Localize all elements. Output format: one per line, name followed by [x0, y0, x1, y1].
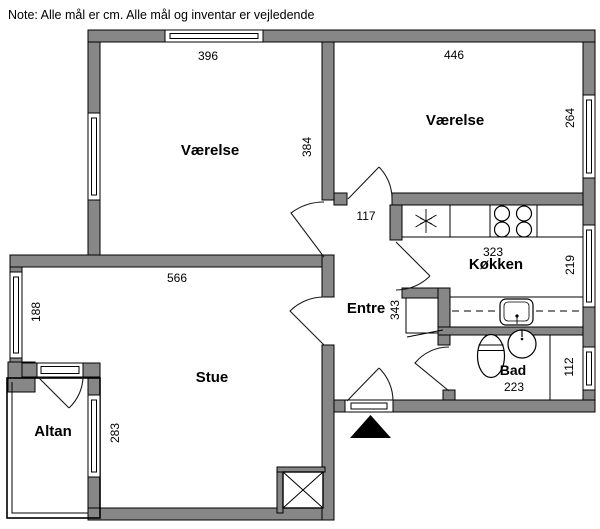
window-pane [587, 230, 592, 302]
wall-segment [88, 30, 595, 42]
dim-vaerelse1-width: 396 [198, 49, 218, 63]
floor-plan: Note: Alle mål er cm. Alle mål og invent… [0, 0, 600, 529]
window-pane [170, 34, 258, 39]
balcony-outline [7, 378, 100, 518]
dim-stue-width: 566 [167, 271, 187, 285]
window-pane [587, 352, 592, 385]
window-pane [92, 400, 97, 472]
room-label-altan: Altan [34, 423, 72, 440]
kitchen-sink-icon [500, 299, 533, 325]
wall-segment [322, 42, 334, 200]
balcony-door-sill-pane [41, 367, 79, 374]
kitchen-counter-top [402, 205, 583, 237]
door-arc-entrance [347, 368, 393, 401]
shaft-x-box [283, 472, 323, 508]
window-pane [14, 277, 19, 353]
wall-segment [334, 193, 347, 205]
door-arc-altan [38, 377, 83, 408]
room-label-entre: Entre [347, 300, 385, 317]
entrance-door-sill-pane [351, 403, 387, 409]
note-text: Note: Alle mål er cm. Alle mål og invent… [8, 8, 314, 22]
room-label-stue: Stue [196, 369, 229, 386]
dim-vaerelse2-depth: 264 [563, 108, 577, 128]
wall-segment [277, 467, 325, 472]
room-label-vaerelse1: Værelse [181, 142, 239, 159]
dim-bad-depth: 112 [562, 357, 576, 376]
door-arc-bad [415, 347, 449, 391]
door-arc-vaerelse1 [291, 202, 324, 257]
window-pane [587, 100, 592, 173]
dim-vaerelse2-width: 446 [444, 48, 464, 62]
door-arc-koekken [396, 242, 430, 290]
balcony-inner-line [12, 382, 88, 513]
wall-segment [443, 390, 455, 400]
wall-segment [277, 467, 283, 513]
wall-segment [438, 327, 583, 335]
entre-closet [406, 298, 443, 337]
door-arc-vaerelse2 [348, 167, 392, 199]
closet-box [406, 298, 438, 333]
wall-segment [88, 508, 334, 520]
wall-segment [390, 205, 402, 240]
labels: Værelse 396 384 Værelse 446 264 Køkken 3… [29, 48, 577, 443]
dim-entre-hall-width: 117 [356, 209, 375, 223]
dim-entre-depth: 343 [388, 300, 402, 320]
room-label-bad: Bad [500, 362, 526, 378]
dim-koekken-width: 323 [483, 245, 503, 259]
dim-vaerelse1-depth: 384 [300, 137, 314, 157]
room-label-vaerelse2: Værelse [426, 112, 484, 129]
washbasin-icon [508, 330, 536, 358]
dim-stue-alcove-depth: 188 [29, 302, 43, 322]
balcony-railing [7, 378, 100, 518]
wall-segment [322, 255, 334, 297]
floor-plan-page: Note: Alle mål er cm. Alle mål og invent… [0, 0, 600, 529]
dim-bad-width: 223 [504, 380, 524, 394]
wall-segment [322, 345, 334, 520]
entrance-arrow-icon [350, 415, 391, 438]
door-arc-stue [290, 297, 324, 345]
dim-koekken-depth: 219 [563, 255, 577, 275]
wall-segment [392, 193, 583, 205]
window-pane [92, 118, 97, 195]
wall-segment [438, 288, 450, 345]
wall-segment [10, 255, 334, 267]
dim-stue-west-depth: 283 [108, 423, 122, 443]
